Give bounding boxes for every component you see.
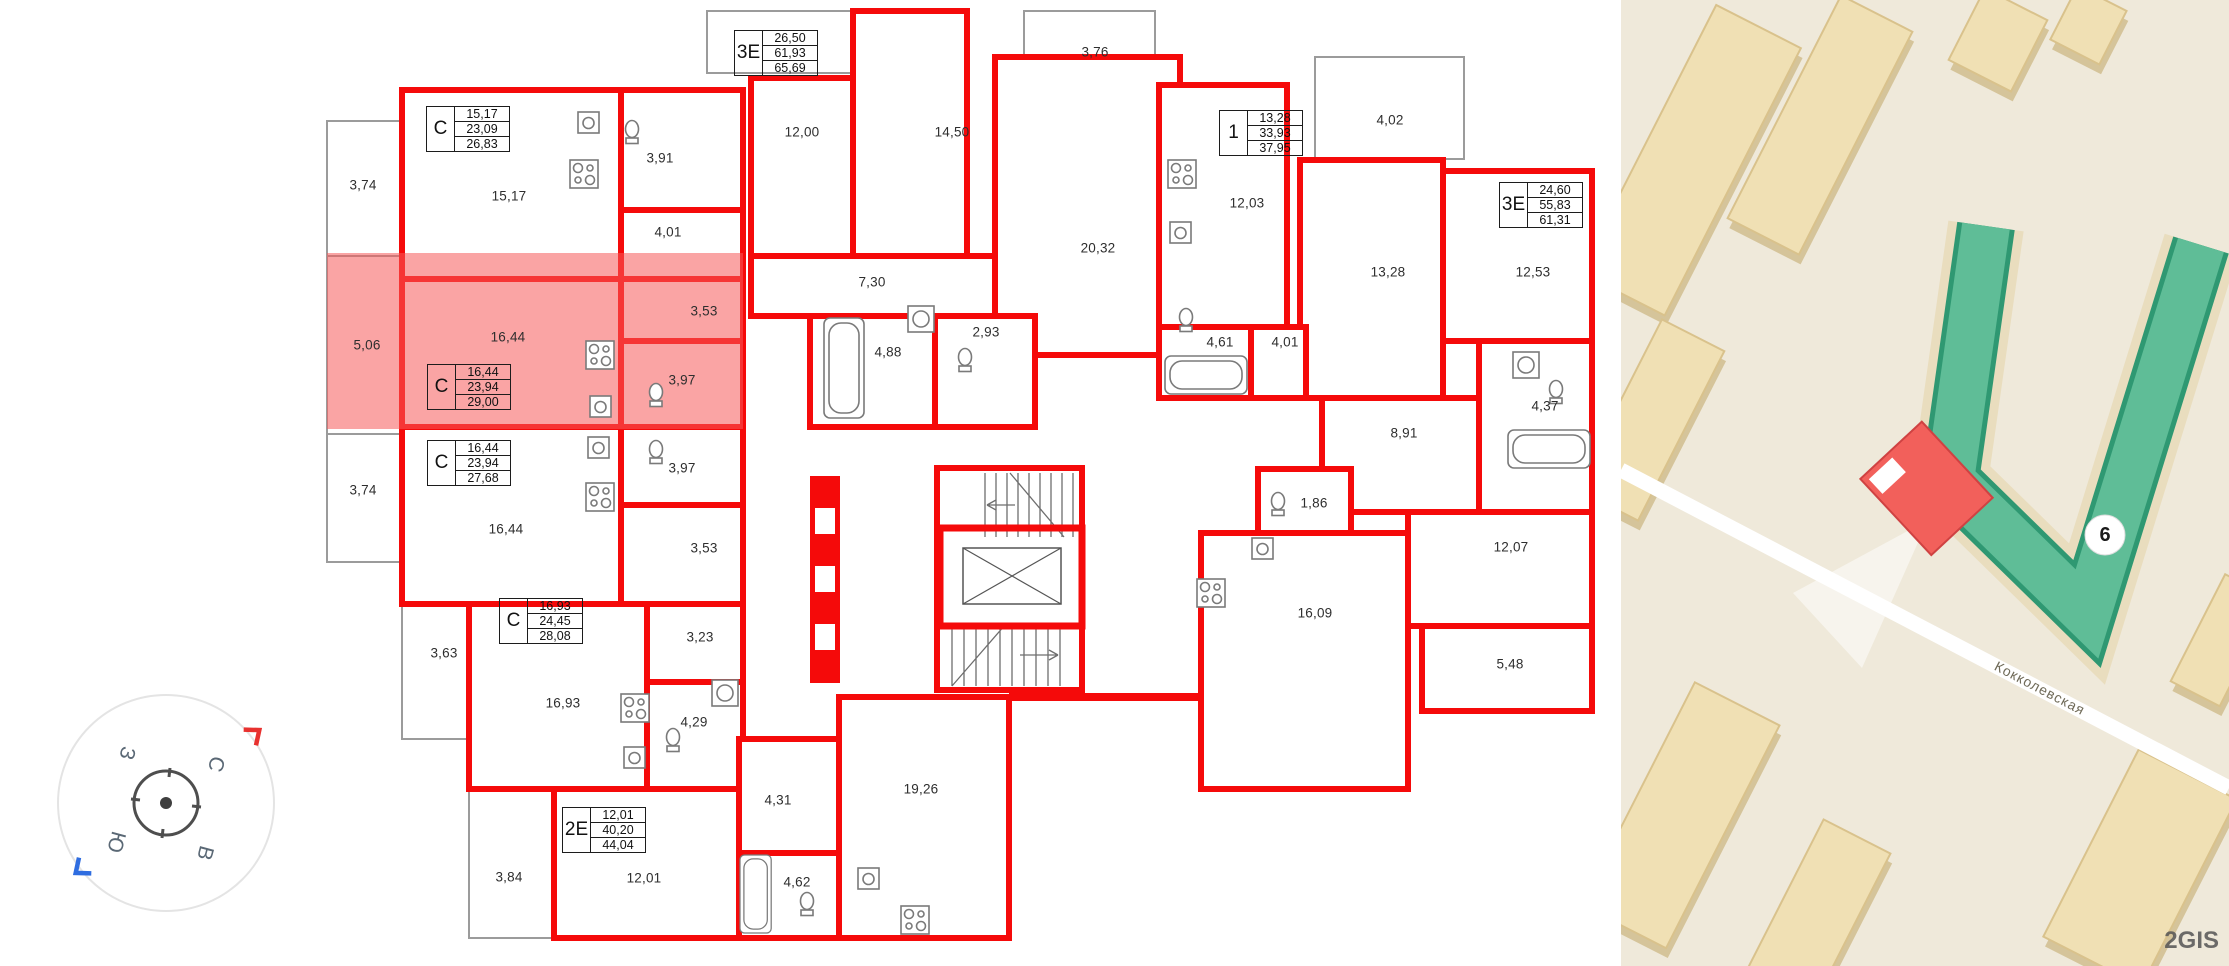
sink-icon (624, 747, 645, 768)
apartment-type: С (500, 599, 528, 643)
compass-icon: С В Ю З (58, 695, 274, 911)
room-area-label: 16,44 (489, 522, 524, 537)
building-number-badge: 6 (2085, 515, 2125, 555)
room-area-label: 16,09 (1298, 606, 1333, 621)
building-number: 6 (2099, 524, 2110, 546)
sink-icon (590, 396, 611, 417)
room-area-label: 12,01 (627, 871, 662, 886)
room-area-label: 3,97 (668, 461, 695, 476)
room-area-label: 2,93 (972, 325, 999, 340)
room-area-label: 20,32 (1081, 241, 1116, 256)
apartment-info-table: 1 13,28 33,93 37,95 (1219, 110, 1303, 156)
stove-icon (621, 694, 649, 722)
room-area-label: 12,00 (785, 125, 820, 140)
apartment-type: С (428, 441, 456, 485)
room-area-label: 5,48 (1496, 657, 1523, 672)
stove-icon (1168, 160, 1196, 188)
room-area-label: 8,91 (1390, 426, 1417, 441)
room-area-label: 12,03 (1230, 196, 1265, 211)
apartment-info-table: С 15,17 23,09 26,83 (426, 106, 510, 152)
apartment-info-table: С 16,44 23,94 27,68 (427, 440, 511, 486)
toilet-icon (650, 441, 663, 464)
room-area-label: 4,29 (680, 715, 707, 730)
room-area-label: 4,01 (1271, 335, 1298, 350)
toilet-icon (626, 121, 639, 144)
stove-icon (586, 483, 614, 511)
room-area-label: 12,53 (1516, 265, 1551, 280)
location-minimap[interactable]: 6 Кокколевская 2GIS (1621, 0, 2229, 966)
apartment-type: 2Е (563, 808, 591, 852)
selected-apartment-highlight[interactable] (327, 253, 743, 429)
room-area-label: 3,84 (495, 870, 522, 885)
apartment-info-table: 3Е 24,60 55,83 61,31 (1499, 182, 1583, 228)
bathtub-icon (1165, 356, 1247, 394)
room-area-label: 3,76 (1081, 45, 1108, 60)
room-area-label: 7,30 (858, 275, 885, 290)
stove-icon (586, 341, 614, 369)
sink-icon (588, 437, 609, 458)
room-area-label: 16,93 (546, 696, 581, 711)
room-area-label: 1,86 (1300, 496, 1327, 511)
room-area-label: 3,53 (690, 304, 717, 319)
map-provider-watermark: 2GIS (2164, 927, 2219, 954)
room-area-label: 3,91 (646, 151, 673, 166)
washer-icon (1513, 352, 1539, 378)
room-area-label: 16,44 (491, 330, 526, 345)
toilet-icon (959, 349, 972, 372)
apartment-info-table: 2Е 12,01 40,20 44,04 (562, 807, 646, 853)
washer-icon (712, 680, 738, 706)
apartment-type: 3Е (735, 31, 763, 75)
room-area-label: 19,26 (904, 782, 939, 797)
stove-icon (1197, 579, 1225, 607)
apartment-type: 3Е (1500, 183, 1528, 227)
room-area-label: 4,37 (1531, 399, 1558, 414)
stove-icon (901, 906, 929, 934)
sink-icon (578, 112, 599, 133)
toilet-icon (650, 384, 663, 407)
toilet-icon (1272, 493, 1285, 516)
sink-icon (1252, 538, 1273, 559)
apartment-type: С (427, 107, 455, 151)
washer-icon (908, 306, 934, 332)
stairwell (810, 468, 1082, 690)
room-area-label: 12,07 (1494, 540, 1529, 555)
room-area-label: 4,01 (654, 225, 681, 240)
toilet-icon (1180, 309, 1193, 332)
sink-icon (1170, 222, 1191, 243)
room-area-label: 4,61 (1206, 335, 1233, 350)
room-area-label: 3,53 (690, 541, 717, 556)
apartment-type: С (428, 365, 456, 409)
room-area-label: 13,28 (1371, 265, 1406, 280)
bathtub-icon (1508, 430, 1590, 468)
room-area-label: 4,02 (1376, 113, 1403, 128)
bathtub-icon (740, 855, 771, 933)
apartment-info-table: С 16,93 24,45 28,08 (499, 598, 583, 644)
bathtub-icon (824, 318, 864, 418)
room-area-label: 4,88 (874, 345, 901, 360)
sink-icon (858, 868, 879, 889)
room-area-label: 14,50 (935, 125, 970, 140)
room-area-label: 15,17 (492, 189, 527, 204)
room-area-label: 4,31 (764, 793, 791, 808)
stove-icon (570, 160, 598, 188)
room-area-label: 4,62 (783, 875, 810, 890)
apartment-type: 1 (1220, 111, 1248, 155)
apartment-info-table: 3Е 26,50 61,93 65,69 (734, 30, 818, 76)
floorplan-viewer: С В Ю З 3,74 15,17 3,91 4,01 12,00 14,50… (0, 0, 2229, 966)
room-area-label: 5,06 (353, 338, 380, 353)
elevator-icon (963, 548, 1061, 604)
toilet-icon (667, 729, 680, 752)
toilet-icon (801, 893, 814, 916)
room-area-label: 3,74 (349, 483, 376, 498)
room-area-label: 3,63 (430, 646, 457, 661)
room-area-label: 3,97 (668, 373, 695, 388)
floorplan-canvas: С В Ю З (0, 0, 1621, 966)
room-area-label: 3,74 (349, 178, 376, 193)
apartment-info-table-selected[interactable]: С 16,44 23,94 29,00 (427, 364, 511, 410)
room-area-label: 3,23 (686, 630, 713, 645)
